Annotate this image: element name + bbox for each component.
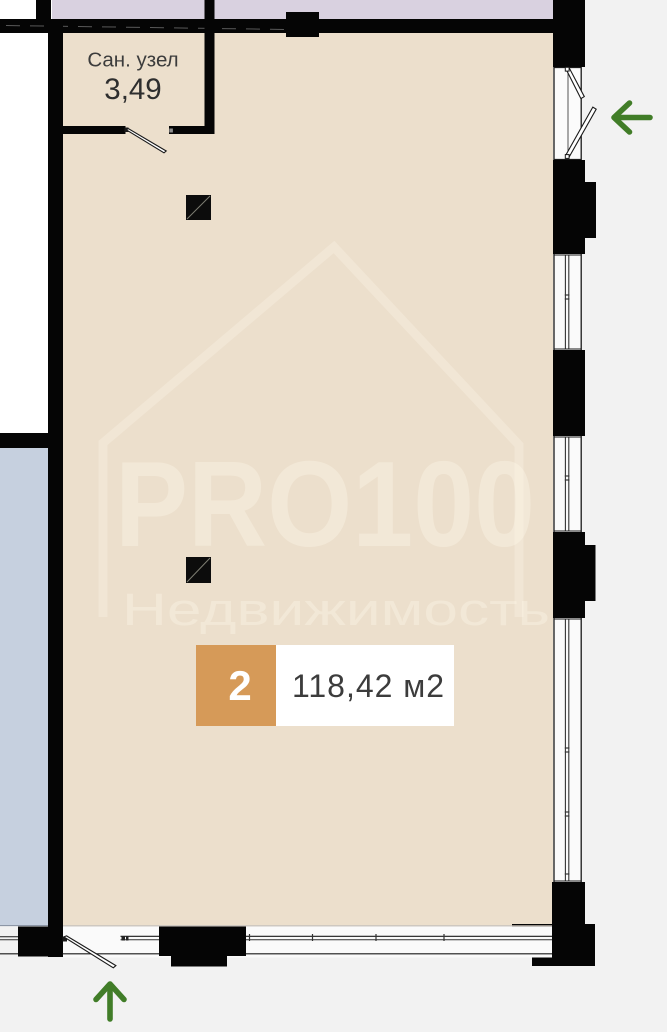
svg-text:118,42 м2: 118,42 м2 [292, 668, 444, 704]
svg-text:Сан. узел: Сан. узел [87, 49, 178, 72]
svg-text:2: 2 [228, 662, 251, 709]
svg-text:3,49: 3,49 [104, 73, 161, 106]
svg-text:PRO100: PRO100 [115, 436, 535, 572]
svg-text:Недвижимость: Недвижимость [122, 584, 550, 635]
